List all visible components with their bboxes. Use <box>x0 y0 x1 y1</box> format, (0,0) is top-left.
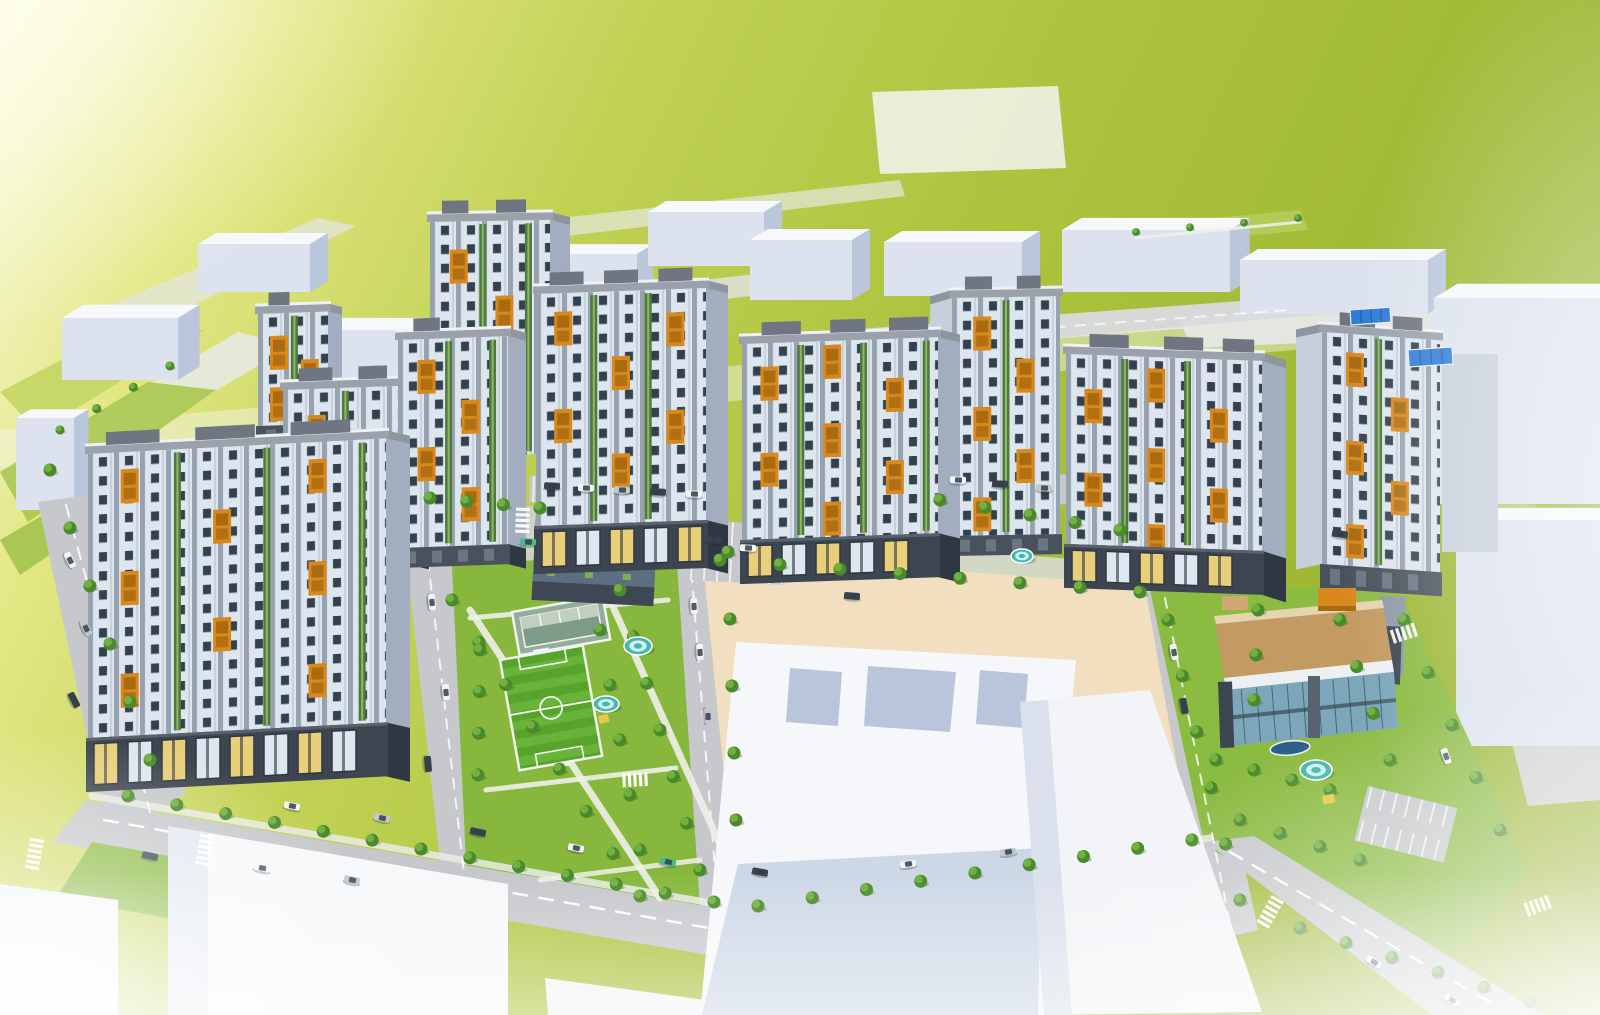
car <box>649 488 667 498</box>
crosswalk <box>1257 895 1284 929</box>
residential-tower-1 <box>85 416 410 799</box>
tree <box>317 825 332 838</box>
massing-building <box>62 305 200 380</box>
car <box>685 490 703 500</box>
massing-building <box>750 229 870 300</box>
massing-courtyard <box>864 666 956 732</box>
massing-building <box>0 884 118 1015</box>
car <box>372 813 392 826</box>
car <box>991 480 1009 490</box>
massing-building <box>884 231 1040 296</box>
residential-tower-3 <box>395 315 526 574</box>
massing-building <box>198 233 328 292</box>
architectural-rendering <box>0 0 1600 1015</box>
car <box>1035 484 1053 494</box>
residential-tower-5 <box>739 315 960 590</box>
car <box>577 484 595 494</box>
massing-building <box>545 978 705 1015</box>
massing-shade <box>168 826 208 1015</box>
crosswalk <box>1524 895 1552 917</box>
tree <box>129 383 140 392</box>
massing-courtyard <box>786 668 842 726</box>
residential-tower-7 <box>1063 333 1286 603</box>
tree <box>415 843 430 856</box>
car <box>421 755 432 774</box>
car <box>282 801 302 814</box>
tree <box>170 798 185 811</box>
solar-panel <box>1408 347 1453 367</box>
tree <box>1524 996 1539 1009</box>
massing-building <box>16 409 88 510</box>
tree <box>1294 922 1309 935</box>
tree <box>366 834 381 847</box>
tree <box>219 807 234 820</box>
car <box>949 476 967 486</box>
tree <box>92 404 103 413</box>
massing-courtyard <box>976 670 1028 728</box>
masterplan-scene <box>0 0 1600 1015</box>
massing-building <box>1240 249 1446 314</box>
car <box>613 486 631 496</box>
crosswalk <box>25 838 44 871</box>
residential-tower-4 <box>533 266 728 580</box>
distant-building <box>872 86 1066 174</box>
solar-panel <box>1350 307 1391 325</box>
tree <box>268 816 283 829</box>
car <box>543 482 561 492</box>
tower-annex <box>1442 354 1498 552</box>
annex <box>1442 354 1498 552</box>
